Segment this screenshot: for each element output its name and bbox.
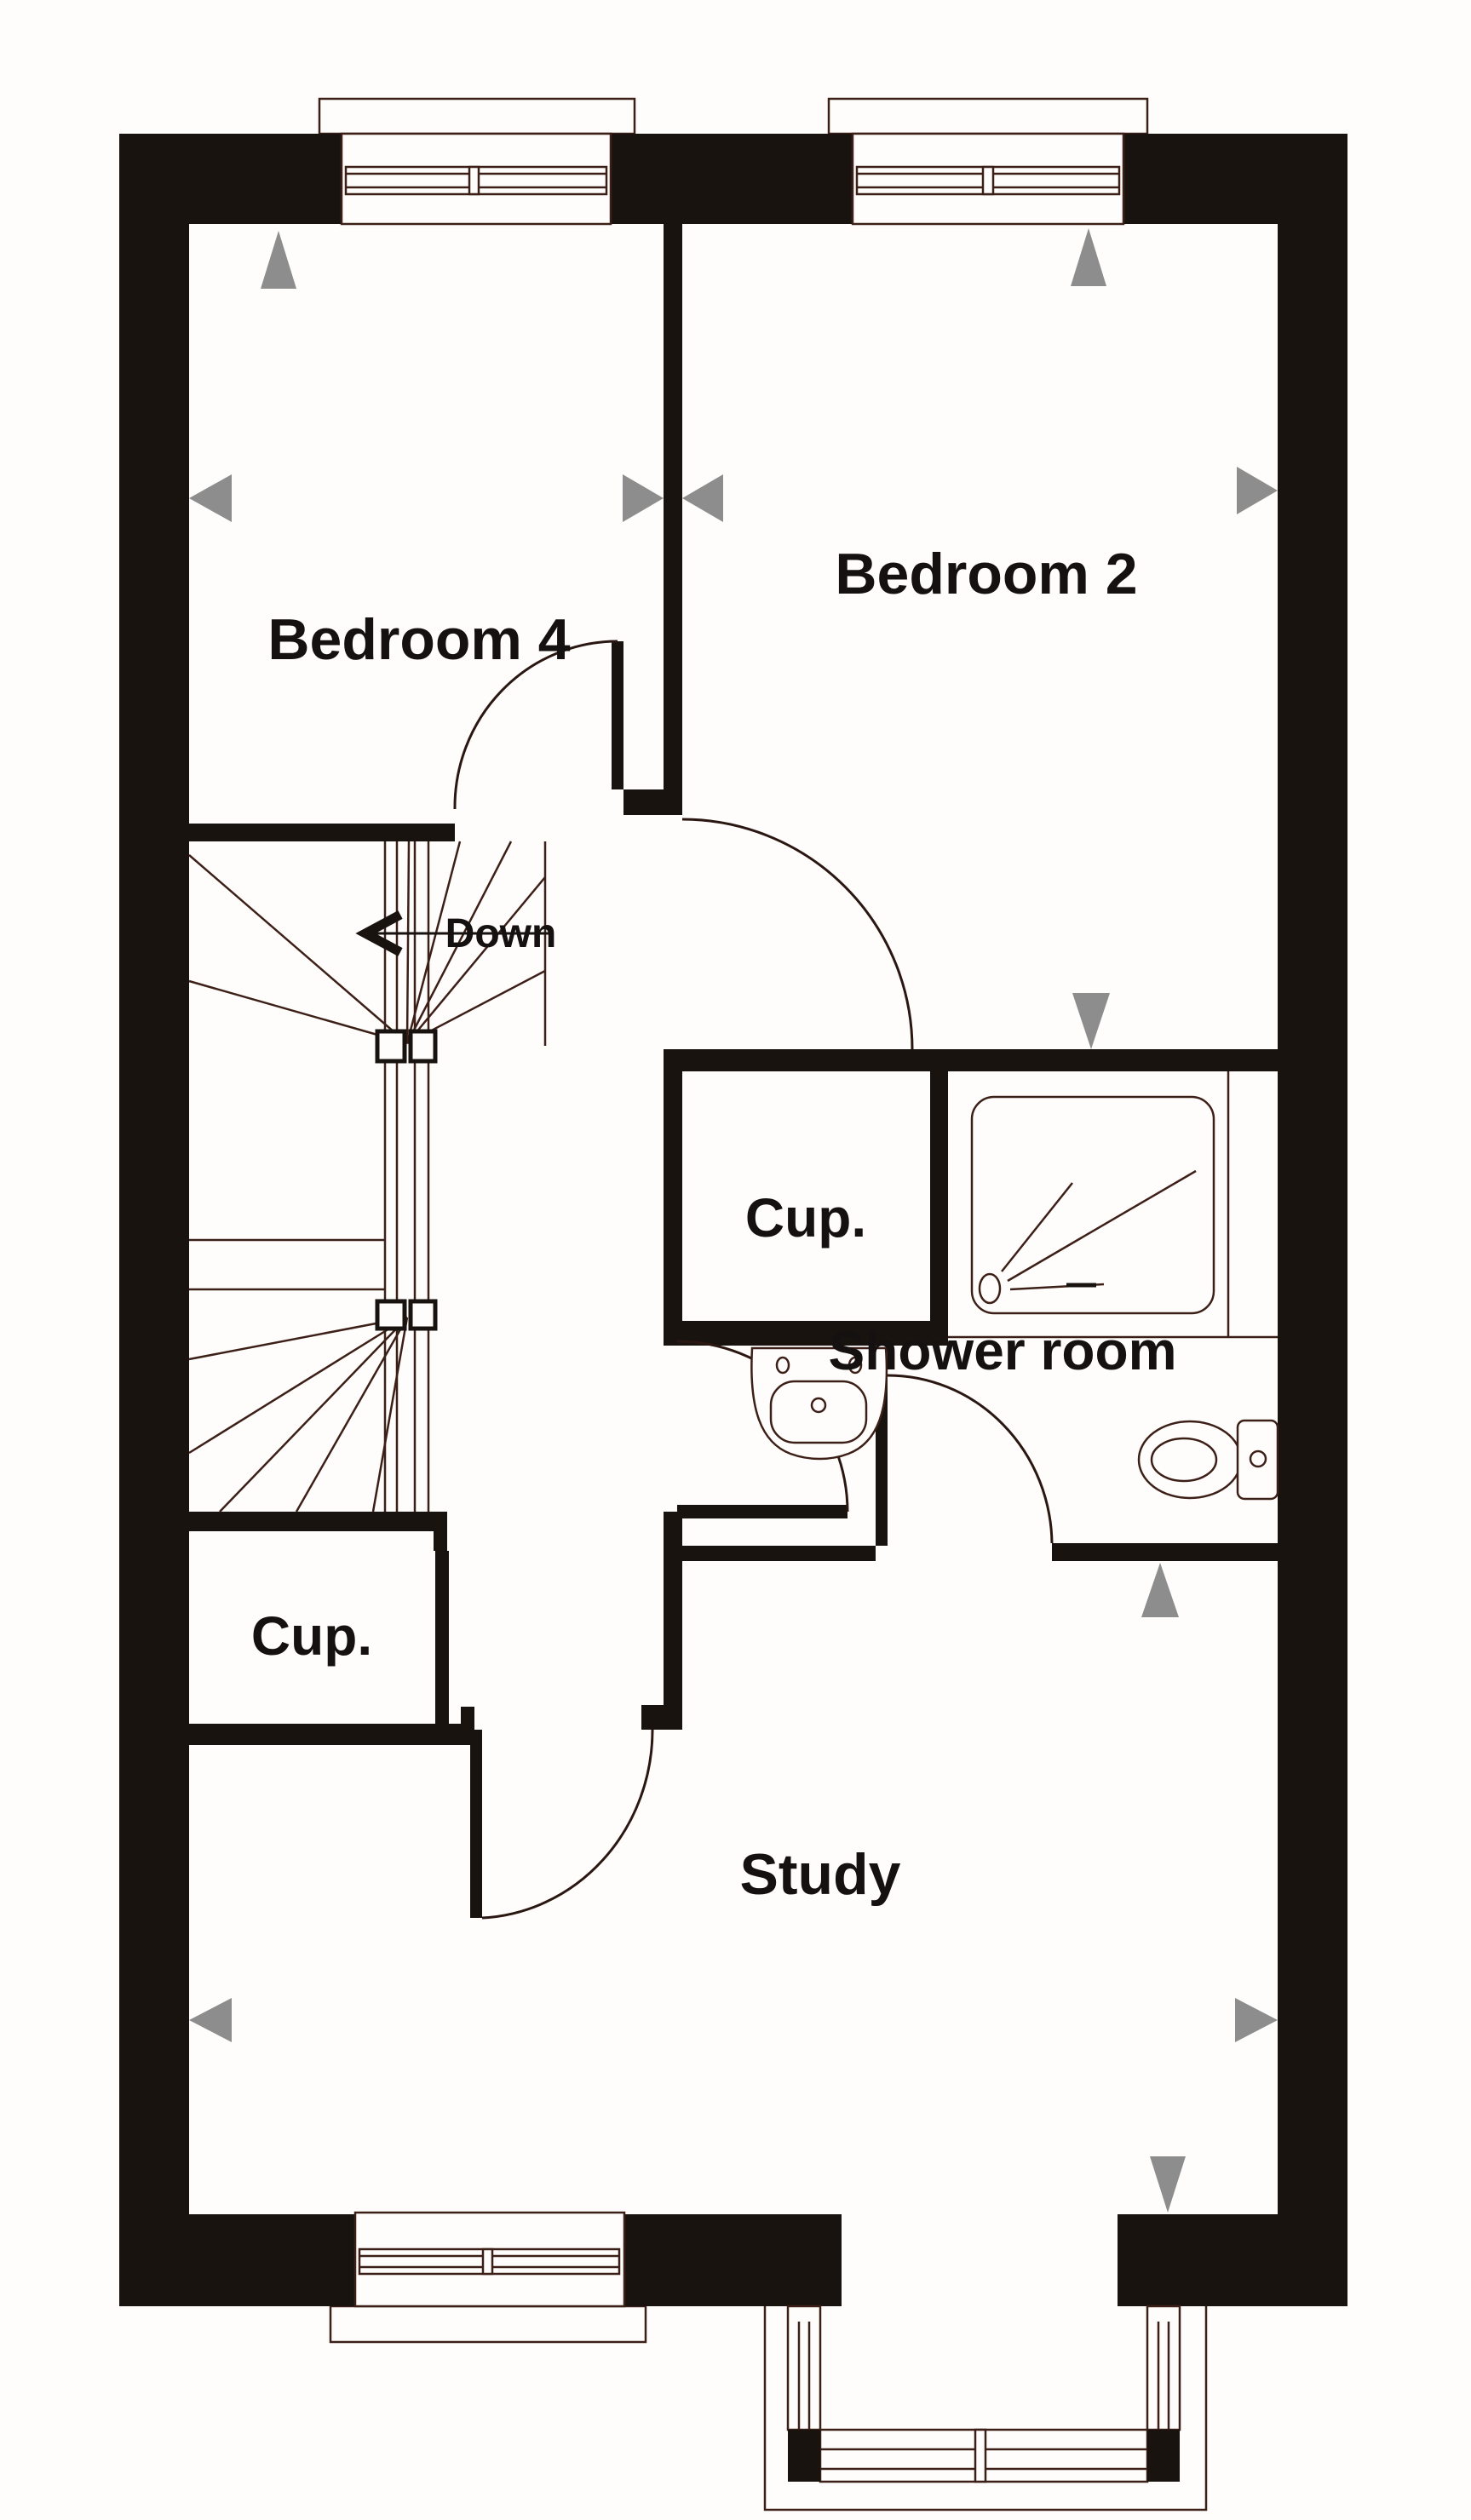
wall-cup-low-right [435,1551,449,1724]
wall-bedroom-divider [664,224,682,815]
label-bedroom2: Bedroom 2 [835,542,1137,606]
wall-bedroom4-bottom [189,824,455,841]
bay-side-left [788,2306,820,2430]
door-leaf [612,641,623,789]
toilet [1139,1421,1278,1499]
wall-cup-low-jamb [461,1707,474,1724]
bay-corner-right [1147,2430,1180,2482]
basin-tap [777,1358,789,1373]
wall-left [119,134,189,2306]
label-shower-room: Shower room [829,1320,1177,1381]
window-mullion [975,2430,985,2482]
toilet-bowl-inner [1152,1438,1216,1481]
wall-bottom-c [1118,2214,1347,2306]
wall-divider-foot [623,789,682,815]
window-bedroom2 [853,134,1123,224]
wall-stairwell-bottom [189,1512,447,1531]
label-cupboard-middle: Cup. [745,1187,866,1249]
wall-bottom-b [624,2214,842,2306]
wall-cup-mid-right [930,1071,948,1346]
window-bedroom4 [342,134,611,224]
wall-lobby-bottom [677,1546,876,1561]
shower-drain [980,1274,1000,1303]
wall-study-jamb [641,1705,682,1730]
wall-bottom-a [119,2214,355,2306]
plan-background [0,0,1471,2520]
wall-shower-bottom [1052,1543,1278,1561]
label-bedroom4: Bedroom 4 [267,607,570,672]
bay-corner-left [788,2430,820,2482]
window-mullion [483,2249,492,2274]
label-study: Study [740,1842,901,1907]
wall-right [1278,134,1347,2306]
label-cupboard-lower: Cup. [251,1605,372,1667]
basin-plughole [812,1398,825,1412]
wall-stairwell-stub [434,1531,447,1551]
window-mullion [983,167,993,194]
newel-post [411,1031,435,1061]
wall-bedroom2-bottom [664,1049,1278,1071]
floor-plan: Bedroom 4 Bedroom 2 Down Cup. Shower roo… [0,0,1471,2520]
label-down: Down [445,911,557,956]
wall-cup-mid-left [664,1071,682,1346]
wall-top-a [119,134,342,224]
newel-post [377,1031,405,1061]
shower-area [948,1071,1278,1337]
toilet-flush-button [1250,1451,1266,1467]
wall-top-b [611,134,853,224]
door-leaf [677,1505,848,1518]
newel-post [411,1301,435,1329]
wall-landing-right [664,1512,682,1705]
wall-top-c [1123,134,1347,224]
bay-side-right [1147,2306,1180,2430]
wall-cup-low-bottom [189,1724,474,1745]
door-leaf [470,1730,482,1918]
newel-post [377,1301,405,1329]
window-mullion [469,167,479,194]
window-study [355,2213,624,2306]
